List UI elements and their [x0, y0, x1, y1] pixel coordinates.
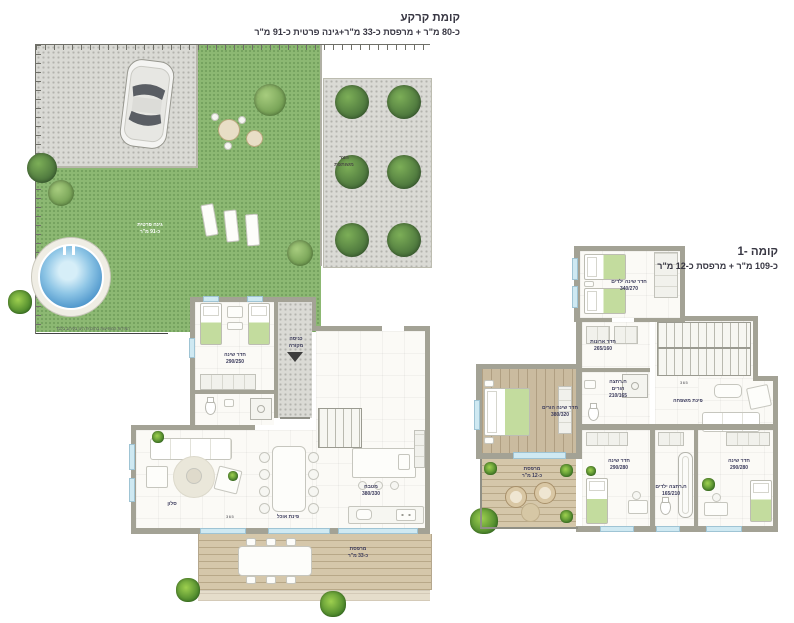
- desk-chair: [632, 491, 641, 500]
- wall: [694, 424, 698, 532]
- nightstand: [584, 281, 594, 287]
- wardrobe: [586, 432, 628, 446]
- wall: [576, 318, 582, 455]
- floor-plan-sheet: חדר שינה 290/250 כניסה מקורה סלון פינת א…: [0, 0, 794, 623]
- toilet-icon: [660, 500, 671, 515]
- desk: [628, 500, 648, 514]
- window: [600, 526, 634, 532]
- room-label-bedroom3: חדר שינה 290/280: [728, 458, 750, 472]
- room-label-bedroom2: חדר שינה 290/280: [608, 458, 630, 472]
- room-label-parents-bath: ח.רחצה הורים 210/165: [609, 379, 627, 399]
- wall: [650, 424, 655, 532]
- wall: [698, 424, 773, 430]
- plant-icon: [484, 462, 497, 475]
- bath-vanity: [658, 432, 684, 446]
- desk-chair: [712, 493, 721, 502]
- ground-floor-title: קומת קרקע כ-80 מ"ר + מרפסת כ-33 מ"ר+גינה…: [254, 12, 460, 37]
- wall: [634, 318, 685, 322]
- toilet-icon: [588, 406, 599, 421]
- staircase: [657, 322, 751, 376]
- room-label-kids-bath: ח.רחצה ילדים 165/210: [655, 484, 686, 498]
- balcony-railing: [480, 527, 578, 529]
- ground-floor-title-line2: כ-80 מ"ר + מרפסת כ-33 מ"ר+גינה פרטית כ-9…: [254, 27, 460, 37]
- plant-icon: [560, 464, 573, 477]
- wardrobe: [726, 432, 770, 446]
- wall: [476, 364, 582, 369]
- window: [474, 400, 480, 430]
- plant-icon: [702, 478, 715, 491]
- bed: [484, 388, 530, 436]
- bed: [584, 254, 626, 280]
- plant-icon: [470, 508, 498, 534]
- room-label-kids-bedroom: חדר שינה ילדים 340/270: [611, 279, 646, 293]
- room-label-balcony: מרפסת כ-12 מ"ר: [522, 466, 542, 480]
- stair-landing-line: [657, 347, 751, 349]
- armchair: [746, 384, 772, 410]
- room-label-family: פינת משפחה: [673, 398, 703, 405]
- sink: [584, 380, 596, 389]
- wall: [684, 316, 758, 321]
- plant-icon: [560, 510, 573, 523]
- wall: [773, 376, 778, 532]
- window: [656, 526, 680, 532]
- wall: [582, 368, 650, 372]
- wall: [753, 316, 758, 378]
- first-floor-title-line1: קומה -1: [657, 246, 778, 258]
- window: [572, 258, 578, 280]
- first-floor-title-line2: כ-109 מ"ר + מרפסת כ-12 מ"ר: [657, 261, 778, 271]
- bed: [750, 480, 772, 522]
- dimension-label: 365: [680, 380, 688, 385]
- window: [706, 526, 742, 532]
- balcony-rug: [521, 503, 540, 522]
- nightstand: [484, 380, 494, 387]
- closet-cabinet: [614, 326, 638, 344]
- ground-floor-title-line1: קומת קרקע: [254, 12, 460, 24]
- room-label-closet: חדר ארונות 265/160: [590, 339, 616, 353]
- window: [572, 286, 578, 308]
- floor-plan-first: חדר שינה ילדים 340/270 חדר ארונות 265/16…: [0, 0, 794, 623]
- room-label-master-bedroom: חדר שינה הורים 380/320: [542, 405, 578, 419]
- plant-icon: [586, 466, 596, 476]
- wall: [655, 424, 694, 430]
- balcony-railing: [480, 459, 482, 529]
- wall: [582, 424, 650, 430]
- first-floor-title: קומה -1 כ-109 מ"ר + מרפסת כ-12 מ"ר: [657, 246, 778, 271]
- desk: [704, 502, 728, 516]
- balcony-door: [513, 452, 566, 459]
- coffee-table: [714, 384, 742, 398]
- bed: [586, 478, 608, 524]
- balcony-chair: [534, 482, 556, 504]
- nightstand: [484, 437, 494, 444]
